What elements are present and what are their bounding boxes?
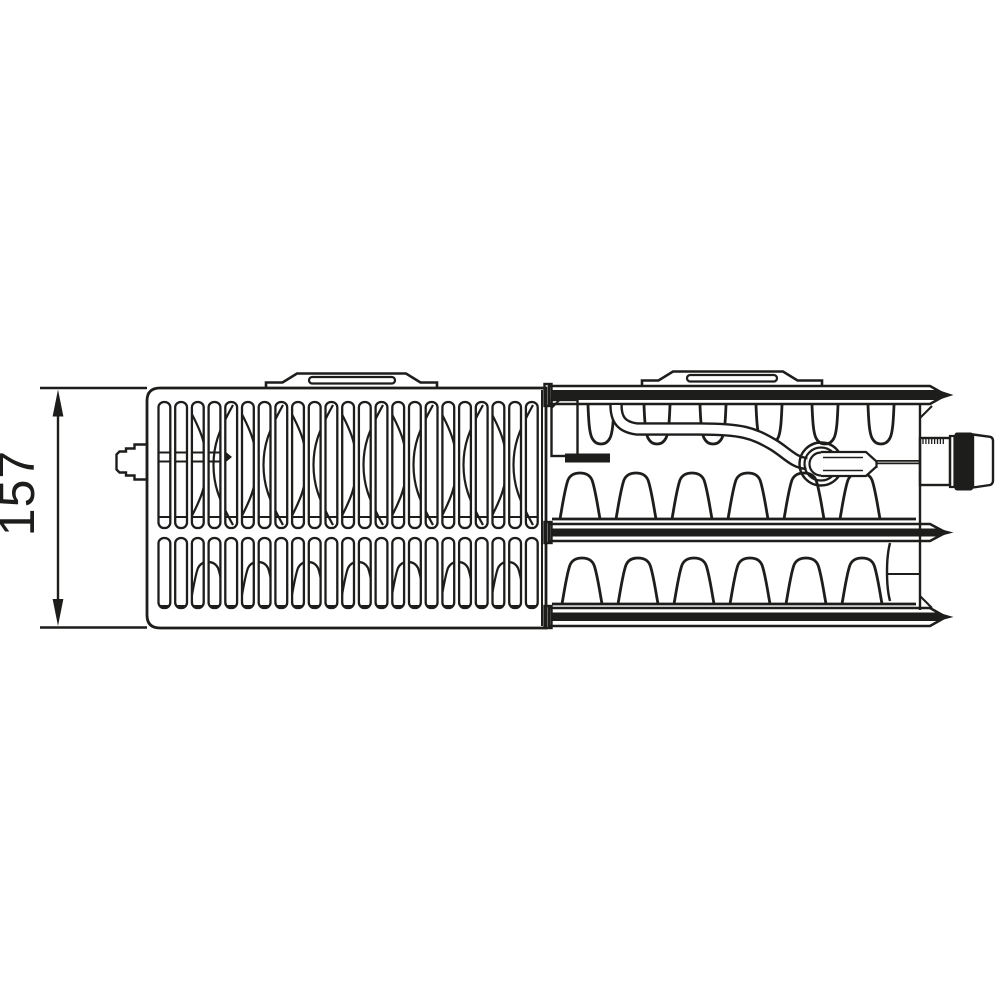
end-plate-slant-top [920, 406, 932, 418]
bracket-slot [309, 377, 395, 384]
fitting-collar [950, 436, 955, 487]
dimension-label: 157 [0, 450, 45, 536]
grille-slot [376, 538, 388, 608]
grille-slot [242, 538, 254, 608]
bracket-profile [266, 374, 437, 389]
grille-slot [342, 402, 354, 528]
grille-slot [242, 402, 254, 528]
grille-slot [359, 402, 371, 528]
bracket-profile [642, 372, 822, 387]
grille-slot [292, 402, 304, 528]
end-column-curve [887, 543, 890, 601]
grille-slot [292, 538, 304, 608]
grille-slot [342, 538, 354, 608]
valve-body [800, 443, 921, 486]
convector-fins-lower-band [552, 543, 919, 604]
panel-back-edge [545, 606, 954, 628]
grille-slot [326, 538, 338, 608]
panel-front-edge [545, 384, 954, 406]
grille-slot [275, 538, 287, 608]
grille-slot [392, 538, 404, 608]
grille-slot [309, 402, 321, 528]
grille-slot [459, 402, 471, 528]
grille-slot [476, 402, 488, 528]
panel-steel-band [552, 390, 954, 400]
mounting-bracket-right [642, 372, 822, 387]
panel-middle-edge [545, 522, 954, 543]
grille-slot [409, 402, 421, 528]
grille-slot [175, 538, 187, 608]
grille-slot [159, 538, 171, 608]
grille-see-through-fins [155, 405, 541, 606]
panel-steel-band [552, 529, 954, 537]
thread-hatching [923, 439, 943, 445]
grille-slot [392, 402, 404, 528]
grille-slot [442, 538, 454, 608]
grille-slot [192, 538, 204, 608]
end-plate-slant-bottom [920, 596, 932, 608]
grille-slot [326, 402, 338, 528]
radiator-technical-drawing: 157 [0, 0, 1000, 1000]
panel-steel-band [552, 613, 954, 622]
grille-slot [426, 538, 438, 608]
dimension-arrowhead-top-icon [53, 390, 64, 417]
grille-slot [159, 402, 171, 528]
dimension-arrowhead-bottom-icon [53, 599, 64, 626]
grille-slot [376, 402, 388, 528]
valve-capillary-line [877, 461, 921, 464]
weld-bar [565, 454, 610, 463]
dimension-annotation: 157 [0, 388, 147, 628]
grille-slot [509, 402, 521, 528]
grille-slot [493, 538, 505, 608]
grille-slot [275, 402, 287, 528]
fitting-cap [973, 435, 993, 488]
radiator-top-grille [147, 388, 546, 628]
grille-slot [225, 538, 237, 608]
grille-slot [426, 402, 438, 528]
water-channel [552, 400, 578, 456]
grille-slot [175, 402, 187, 528]
radiator-cutaway-section [545, 384, 994, 628]
grille-slot [192, 402, 204, 528]
grille-slot [476, 538, 488, 608]
drawing-canvas: 157 [0, 0, 1000, 1000]
inlet-pipe-tip [221, 448, 232, 466]
grille-slot [526, 538, 538, 608]
blind-plug-left [117, 445, 148, 480]
bracket-slot [687, 375, 777, 382]
grille-slot [225, 402, 237, 528]
valve-connection-fitting [920, 433, 993, 491]
right-end-plate [920, 404, 932, 610]
grille-slot [526, 402, 538, 528]
valve-tailpipe-fill [821, 452, 877, 476]
mounting-bracket-left [266, 374, 437, 389]
fitting-black-ring [955, 433, 974, 491]
fitting-threaded-body [920, 438, 950, 485]
